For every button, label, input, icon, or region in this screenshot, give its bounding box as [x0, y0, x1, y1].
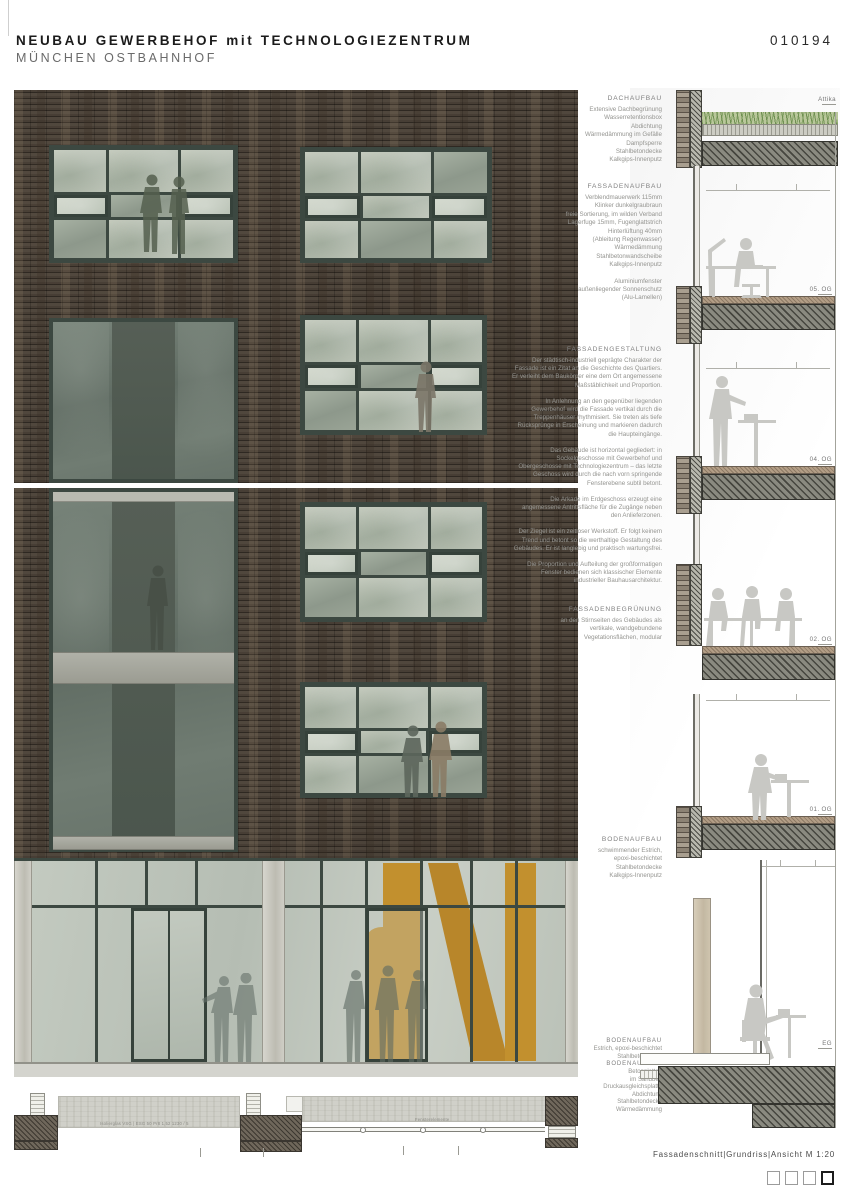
window-upper-left	[49, 145, 238, 263]
person-office-chair-silhouette	[718, 977, 810, 1063]
attika-label: Attika	[776, 96, 836, 105]
person-silhouette	[397, 719, 461, 797]
page-edge-line	[8, 0, 9, 36]
annotation-fassadenaufbau: FASSADENAUFBAU Verblendmauerwerk 115mmKl…	[512, 183, 662, 303]
floor-slab	[702, 304, 835, 330]
floor-label-eg: EG	[772, 1040, 832, 1049]
eg-estrich-band	[640, 1053, 770, 1065]
concrete-pilaster	[262, 861, 285, 1062]
mullion	[515, 861, 518, 1062]
floor-slab	[702, 474, 835, 500]
section-window	[693, 166, 700, 286]
annotation-fassadengestaltung: FASSADENGESTALTUNG Der städtisch-industr…	[512, 346, 662, 594]
roof-gravel-layer	[702, 124, 838, 136]
window-lower-right-bottom	[300, 682, 487, 798]
section-wall	[690, 90, 702, 168]
insulation-detail	[548, 1126, 576, 1138]
floor-slab	[702, 824, 835, 850]
section-wall	[690, 806, 702, 858]
floor-slab	[702, 654, 835, 680]
mullion	[95, 861, 98, 1062]
pedestrian-silhouettes	[340, 965, 440, 1062]
pedestrian-silhouettes	[200, 973, 264, 1062]
wall-pier-detail	[240, 1141, 302, 1152]
section-column	[693, 898, 711, 1062]
facade-elevation-upper	[14, 90, 578, 483]
person-at-desk-silhouette	[700, 222, 792, 298]
entrance-door	[131, 908, 207, 1062]
storefront-ground-floor	[14, 858, 578, 1062]
wall-pier-detail	[240, 1115, 302, 1141]
person-silhouette	[136, 172, 196, 254]
pendant-light	[706, 190, 830, 191]
section-brick-veneer	[676, 90, 690, 168]
eg-slab	[658, 1066, 835, 1104]
person-silhouette	[413, 360, 439, 432]
page-square	[785, 1171, 798, 1185]
wall-pier-detail	[545, 1138, 578, 1148]
section-window	[693, 694, 700, 806]
annotation-bodenaufbau-og: BODENAUFBAU schwimmender Estrich,epoxi-b…	[512, 836, 662, 881]
window-lower-right-top	[300, 502, 487, 622]
stair-sill	[53, 836, 234, 850]
wall-pier-detail	[14, 1115, 58, 1141]
stair-glazing-lower	[49, 488, 238, 852]
transom	[14, 905, 578, 908]
detail-label-left: Isolierglas VSG | ESG 50 Pr8 1,52 1230 /…	[100, 1121, 189, 1126]
mullion	[320, 861, 323, 1062]
figure-caption: Fassadenschnitt|Grundriss|Ansicht M 1:20	[653, 1150, 835, 1159]
window-upper-right	[300, 147, 492, 263]
insulation-detail	[30, 1093, 45, 1117]
annotation-dachaufbau: DACHAUFBAU Extensive DachbegrünungWasser…	[512, 95, 662, 165]
meeting-group-silhouette	[696, 584, 808, 648]
concrete-lintel	[53, 492, 234, 502]
person-at-counter-silhouette	[735, 752, 813, 820]
section-brick-veneer	[676, 456, 690, 514]
pendant-light	[706, 700, 830, 701]
project-number: 010194	[770, 33, 833, 48]
page-square-active	[821, 1171, 834, 1185]
sidewalk	[14, 1062, 578, 1077]
roof-slab	[702, 141, 838, 166]
insulation-detail	[246, 1093, 261, 1117]
concrete-pilaster	[565, 861, 578, 1062]
stair-landing-slab	[53, 652, 234, 684]
section-brick-veneer	[676, 806, 690, 858]
window-plan-line	[302, 1127, 545, 1132]
section-brick-veneer	[676, 564, 690, 646]
person-silhouette	[145, 564, 171, 654]
detail-label-right: Fensterelemente	[415, 1117, 449, 1122]
pendant-light	[760, 866, 835, 867]
person-standing-desk-silhouette	[698, 374, 782, 468]
concrete-pilaster	[14, 861, 32, 1062]
pendant-light	[706, 368, 830, 369]
mullion	[470, 861, 473, 1062]
presentation-board: NEUBAU GEWERBEHOF mit TECHNOLOGIEZENTRUM…	[0, 0, 849, 1200]
eg-slab-step	[752, 1104, 835, 1128]
wall-pier-detail	[14, 1141, 58, 1150]
page-indicator	[767, 1171, 834, 1185]
wall-pier-detail	[545, 1096, 578, 1126]
section-edge-line	[835, 112, 836, 1128]
page-square	[767, 1171, 780, 1185]
orange-supergraphic	[14, 861, 578, 1062]
page-title: NEUBAU GEWERBEHOF mit TECHNOLOGIEZENTRUM	[16, 33, 473, 48]
annotation-fassadenbegruenung: FASSADENBEGRÜNUNG an den Stirnseiten des…	[512, 606, 662, 642]
page-subtitle: MÜNCHEN OSTBAHNHOF	[16, 51, 217, 65]
facade-elevation-lower	[14, 488, 578, 1075]
stair-glazing-upper	[49, 318, 238, 483]
section-window	[693, 514, 700, 564]
page-square	[803, 1171, 816, 1185]
section-brick-veneer	[676, 286, 690, 344]
window-mid-right	[300, 315, 487, 435]
